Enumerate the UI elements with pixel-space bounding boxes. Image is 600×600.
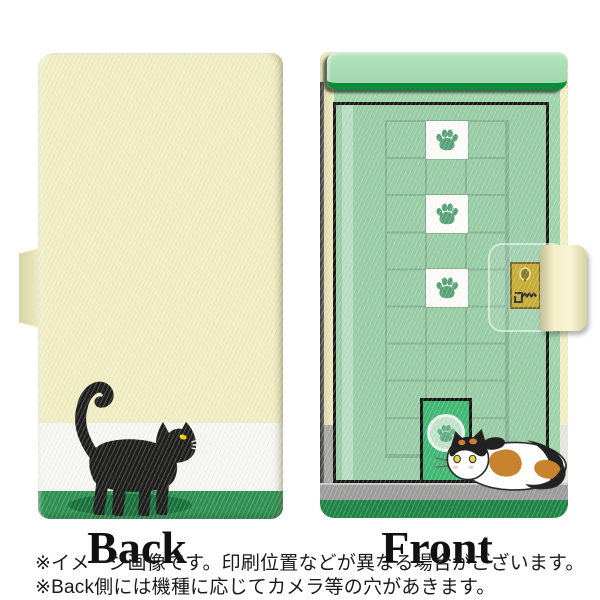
closure-strap [540,245,587,331]
disclaimer: ※イメージ画像です。印刷位置などが異なる場合がございます。 ※Back側には機種… [35,552,595,600]
disclaimer-line-2: ※Back側には機種に応じてカメラ等の穴があきます。 [35,576,595,600]
back-strap-tab [19,248,40,328]
paw-tile [426,269,468,307]
back-case [38,53,283,519]
base-band [320,500,568,518]
paw-tile [426,195,468,233]
door-lintel [327,52,567,90]
paw-icon [433,127,461,153]
door-highlight [342,105,353,480]
product-image: Back Front ※イメージ画像です。印刷位置などが異なる場合がございます。… [0,0,600,600]
cat-eye [469,455,476,462]
calico-cat-illustration [433,428,569,492]
disclaimer-line-1: ※イメージ画像です。印刷位置などが異なる場合がございます。 [35,552,595,576]
paw-icon [433,201,461,227]
paw-icon [433,275,461,301]
paw-tile [426,121,468,159]
cat-eye [454,455,461,462]
black-cat-illustration [64,381,214,519]
front-case [320,52,568,518]
